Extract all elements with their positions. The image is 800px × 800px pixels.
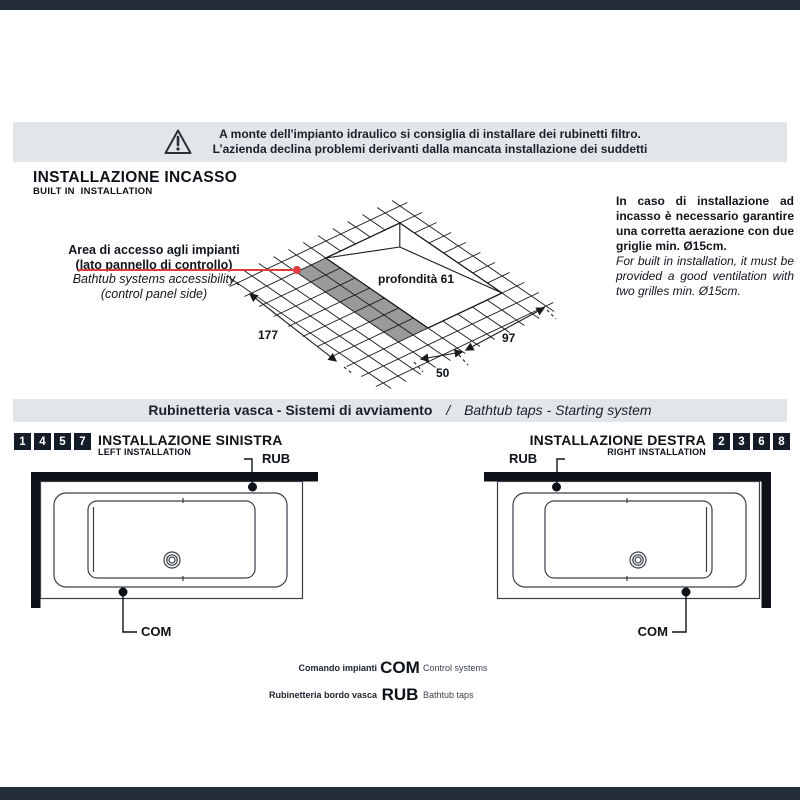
- ventilation-note-en: For built in installation, it must be pr…: [616, 254, 794, 299]
- left-callout-lines: [123, 459, 252, 632]
- right-number-boxes: 2 3 6 8: [713, 433, 790, 450]
- right-bathtub-diagram: [430, 450, 780, 650]
- legend-com-en: Control systems: [423, 663, 593, 673]
- left-number-boxes: 1 4 5 7: [14, 433, 91, 450]
- warning-line-1: A monte dell'impianto idraulico si consi…: [93, 127, 767, 142]
- left-rub-dot: [248, 483, 257, 492]
- warning-text: A monte dell'impianto idraulico si consi…: [93, 127, 767, 157]
- taps-title-it: Rubinetteria vasca - Sistemi di avviamen…: [148, 402, 432, 418]
- legend-row-rub: Rubinetteria bordo vasca RUB Bathtub tap…: [0, 685, 800, 705]
- legend-rub-it: Rubinetteria bordo vasca: [207, 690, 377, 700]
- incasso-heading: INSTALLAZIONE INCASSO BUILT IN INSTALLAT…: [33, 170, 237, 197]
- left-installation-title: INSTALLAZIONE SINISTRA: [98, 433, 283, 447]
- left-bathtub-diagram: [20, 450, 370, 650]
- legend: Comando impianti COM Control systems Rub…: [0, 658, 800, 712]
- ventilation-note-it: In caso di installazione ad incasso è ne…: [616, 194, 794, 253]
- bottom-page-bar: [0, 787, 800, 800]
- right-callout-lines: [557, 459, 686, 632]
- incasso-subtitle: BUILT IN INSTALLATION: [33, 186, 237, 197]
- page-content: A monte dell'impianto idraulico si consi…: [0, 10, 800, 788]
- legend-row-com: Comando impianti COM Control systems: [0, 658, 800, 678]
- taps-title-en: Bathtub taps - Starting system: [464, 402, 652, 418]
- incasso-title: INSTALLAZIONE INCASSO: [33, 170, 237, 186]
- number-box-1: 1: [14, 433, 31, 450]
- right-installation-title: INSTALLAZIONE DESTRA: [530, 433, 706, 447]
- right-com-label: COM: [628, 624, 668, 639]
- number-box-6: 6: [753, 433, 770, 450]
- right-tub-outline: [498, 482, 760, 599]
- left-rub-label: RUB: [262, 451, 290, 466]
- dim-177-label: 177: [258, 328, 278, 342]
- taps-title-separator: /: [446, 402, 450, 418]
- dim-50-label: 50: [436, 366, 449, 380]
- legend-com-it: Comando impianti: [207, 663, 377, 673]
- left-com-label: COM: [141, 624, 171, 639]
- right-com-dot: [682, 588, 691, 597]
- right-rub-dot: [552, 483, 561, 492]
- top-page-bar: [0, 0, 800, 10]
- ventilation-note: In caso di installazione ad incasso è ne…: [616, 194, 794, 299]
- number-box-3: 3: [733, 433, 750, 450]
- number-box-5: 5: [54, 433, 71, 450]
- dim-97-label: 97: [502, 331, 515, 345]
- number-box-4: 4: [34, 433, 51, 450]
- warning-line-2: L’azienda declina problemi derivanti dal…: [93, 142, 767, 157]
- warning-banner: A monte dell'impianto idraulico si consi…: [13, 122, 787, 162]
- annotation-pointer-line: [78, 269, 298, 271]
- number-box-2: 2: [713, 433, 730, 450]
- number-box-7: 7: [74, 433, 91, 450]
- left-tub-outline: [41, 482, 303, 599]
- annotation-pointer-dot: [293, 266, 301, 274]
- taps-section-band: Rubinetteria vasca - Sistemi di avviamen…: [13, 399, 787, 422]
- right-rub-label: RUB: [509, 451, 549, 466]
- legend-rub-code: RUB: [377, 685, 423, 705]
- legend-com-code: COM: [377, 658, 423, 678]
- depth-label: profondità 61: [360, 272, 472, 286]
- legend-rub-en: Bathtub taps: [423, 690, 593, 700]
- recess-grid-diagram: [225, 192, 570, 392]
- number-box-8: 8: [773, 433, 790, 450]
- left-com-dot: [119, 588, 128, 597]
